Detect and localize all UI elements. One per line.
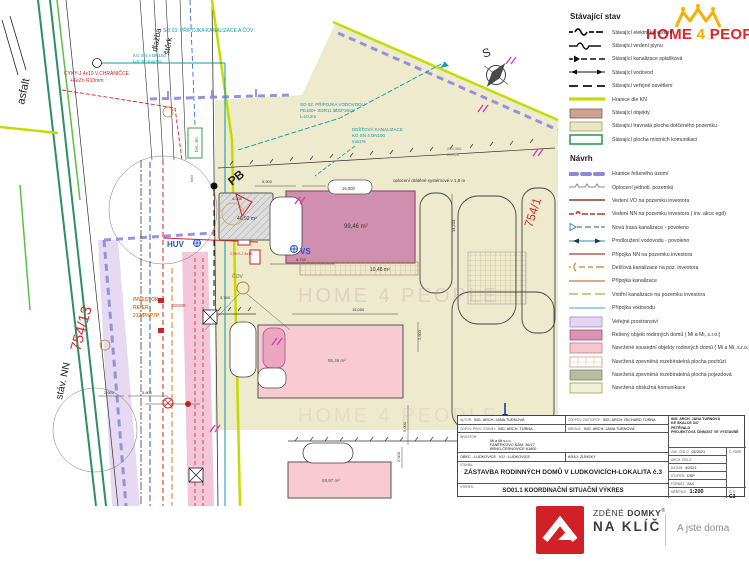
- legend-symbol-nn-line: [569, 209, 607, 220]
- vs-marker: [291, 246, 298, 253]
- dim-value: 4,200: [232, 196, 243, 201]
- legend-item-label: Stávající elektrické vedení: [612, 30, 672, 36]
- legend-item: Nová trasa kanalizace - povoleno: [563, 221, 749, 234]
- label-vs: VS: [300, 247, 311, 256]
- brand-word-zdene: ZDĚNÉ: [593, 508, 624, 518]
- brand-word-domky: DOMKY: [627, 508, 661, 518]
- legend-symbol-fencing: [569, 182, 607, 193]
- field-label: MĚŘÍTKO:: [671, 490, 686, 494]
- level-value: 269,366: [447, 146, 462, 151]
- legend-item-label: Stávající objekty: [612, 110, 650, 116]
- legend-swatch-walk-paving: [569, 356, 607, 368]
- label-investor: 212/PHP7P: [133, 313, 160, 319]
- titleblock-date-cell: DATUM:4/2021: [669, 464, 727, 472]
- legend-item: Navržené sousední objekty rodinných domů…: [563, 342, 749, 355]
- field-value: ING. ARCH. JANA TURNOVÁ: [584, 427, 635, 431]
- dim-value: 3,760: [220, 295, 231, 300]
- brand-word-naklic: NA KLÍČ: [593, 520, 666, 534]
- dim-value: 14,203: [451, 219, 456, 232]
- legend-item-label: Veřejné prostranství: [612, 319, 658, 325]
- legend-section-title: Návrh: [570, 154, 749, 163]
- legend-symbol-solved-boundary: [569, 169, 607, 180]
- legend-item-label: Stávající travnatá plocha dotčeného poze…: [612, 123, 717, 129]
- label-stav-nn: stáv. NN: [54, 362, 73, 401]
- note-cyky: +FeZn R10mm: [70, 78, 103, 84]
- label-bet-skl: bet. skl.: [194, 136, 199, 152]
- label-huv: HUV: [167, 240, 185, 249]
- legend-symbol-kn-boundary: [569, 94, 607, 105]
- legend-swatch-neighbor-houses: [569, 342, 607, 354]
- legend-item: Vedení VO na pozemku investora: [563, 194, 749, 207]
- note-cyky-small: CYKY-J 4x16: [230, 252, 252, 256]
- legend-item: Prodloužení vodovodu - povoleno: [563, 234, 749, 247]
- legend-item: Stávající vodovod: [563, 66, 749, 79]
- legend-symbol-lighting: [569, 81, 607, 92]
- note-rain-spec: min2%: [352, 139, 366, 144]
- field-value: 04/2021: [691, 450, 705, 454]
- legend-item-label: Přípojka vodovodu: [612, 305, 655, 311]
- field-label: STUPEŇ:: [671, 474, 685, 478]
- legend-section-title: Stávající stav: [570, 12, 749, 21]
- label-investor: RE-ER: [133, 305, 149, 311]
- legend-item: Stávající veřejné osvětlení: [563, 80, 749, 93]
- zdene-domky-logo-icon: [536, 506, 584, 554]
- legend-item-label: Přípojka kanalizace: [612, 278, 657, 284]
- field-label: ZAK. ČÍSLO:: [671, 450, 689, 454]
- legend-item: Navržená obslužná komunikace: [563, 382, 749, 395]
- legend-symbol-vo-line: [569, 195, 607, 206]
- compass-s: S: [480, 45, 492, 61]
- legend-item-label: Stávající vodovod: [612, 70, 653, 76]
- legend-item-label: Řešený objekt rodinných domů ( Mi a Mi, …: [612, 332, 720, 338]
- legend-item: Vedení NN na pozemku investora ( inv. ak…: [563, 208, 749, 221]
- legend-panel: Stávající stav Stávající elektrické vede…: [563, 12, 749, 395]
- title-block: AUTOR:ING. ARCH. JANA TURNOVÁ ZODPOV. ZÁ…: [457, 415, 745, 497]
- dim-value: 8,740: [296, 257, 307, 262]
- field-label: ARCH. ČÍSLO:: [671, 458, 692, 462]
- region: KRAJ: ZLÍNSKÝ: [568, 455, 596, 459]
- dim-value: 2,000: [104, 390, 115, 395]
- legend-item: Stávající objekty: [563, 106, 749, 119]
- legend-item-label: Oplocení jednotl. pozemků: [612, 185, 673, 191]
- field-label: AUTOR:: [460, 418, 472, 422]
- legend-item: Stávající elektrické vedení: [563, 26, 749, 39]
- legend-item-label: Stávající veřejné osvětlení: [612, 83, 673, 89]
- field-value: ING. ARCH. JANA TURNOVÁ: [474, 418, 525, 422]
- drawing-sheet: HOME 4 PEOPLE HOME 4 PEOPLE SO 03: PŘÍPO…: [0, 0, 749, 562]
- titleblock-investor-cell: INVESTOR: Mi a Mi s.r.o. FANĚRKOVO NÁM. …: [458, 433, 669, 453]
- legend-item-label: Dešťová kanalizace na poz. investora: [612, 265, 698, 271]
- titleblock-number-cell: Č. V. C3: [727, 488, 746, 498]
- legend-item-label: Navržená zpevněná rozebíratelná plocha p…: [612, 372, 732, 378]
- area-value: 10,48 m²: [370, 267, 390, 273]
- label-cov: ČOV: [232, 273, 244, 280]
- legend-symbol-rain-sewer: [569, 262, 607, 273]
- label-kolo: kolo: [189, 174, 194, 182]
- legend-item: Dešťová kanalizace na poz. investora: [563, 261, 749, 274]
- legend-symbol-nn-connection: [569, 249, 607, 260]
- legend-item: Stávající vedení plynu: [563, 39, 749, 52]
- titleblock-format-cell: FORMÁT:2A4: [669, 480, 727, 488]
- dim-value: 5,800: [142, 390, 153, 395]
- note-so02-spec: PE100+ SDR11 lØ32*3mm: [300, 108, 354, 113]
- titleblock-archno-cell: ARCH. ČÍSLO:: [669, 456, 727, 464]
- legend-symbol-gas: [569, 41, 607, 52]
- surface-label-sterk: štěrk: [162, 36, 174, 56]
- dim-value: 5,000: [402, 421, 407, 432]
- label-investor: INVESTOR: [133, 297, 159, 303]
- field-label: FORMÁT:: [671, 482, 685, 486]
- legend-item: Přípojka vodovodu: [563, 301, 749, 314]
- note-rain: DEŠŤOVÁ KANALIZACE: [352, 125, 403, 132]
- note-so03: SO 03: PŘÍPOJKA KANALIZACE A ČOV: [163, 26, 254, 34]
- legend-item: Řešený objekt rodinných domů ( Mi a Mi, …: [563, 328, 749, 341]
- legend-item-label: Vnitřní kanalizace na pozemku investora: [612, 292, 705, 298]
- drawing-number: C3: [729, 494, 735, 498]
- legend-item-label: Vedení VO na pozemku investora: [612, 198, 689, 204]
- dim-value: 15,050: [352, 307, 365, 312]
- note-cyky: CYKY-J 4x10 V.CHRÁNIČCE: [64, 70, 130, 77]
- legend-item: Stávající kanalizace splašková: [563, 53, 749, 66]
- titleblock-order-cell: ZAK. ČÍSLO:04/2021: [669, 448, 727, 456]
- footer-divider: [665, 514, 666, 546]
- field-value: 4/2021: [685, 466, 697, 470]
- field-label: STAVBA:: [460, 463, 473, 467]
- legend-item-label: Navržená obslužná komunikace: [612, 385, 686, 391]
- legend-symbol-new-sewer: [569, 222, 607, 233]
- legend-item-label: Přípojka NN na pozemku investora: [612, 252, 692, 258]
- titleblock-author-cell: AUTOR:ING. ARCH. JANA TURNOVÁ: [458, 416, 566, 425]
- field-label: INVESTOR:: [460, 435, 477, 439]
- legend-symbol-internal-sewer: [569, 289, 607, 300]
- note-so02-spec: l=10,2m: [300, 114, 316, 119]
- legend-symbol-water: [569, 67, 607, 78]
- legend-symbol-water-connection: [569, 303, 607, 314]
- label-ss: SS200: [172, 303, 186, 308]
- legend-item: Stávající travnatá plocha dotčeného poze…: [563, 120, 749, 133]
- legend-item-label: Stávající vedení plynu: [612, 43, 663, 49]
- legend-symbol-water-extension: [569, 236, 607, 247]
- legend-symbol-sewer-connection: [569, 276, 607, 287]
- field-value: ING. ARCH. RICHARD TURNA: [603, 418, 656, 422]
- municipality: OBEC - LUDKOVICE: [460, 455, 496, 459]
- parcel-754-13: 754/13: [67, 304, 95, 353]
- titleblock-scale-cell: MĚŘÍTKO: 1:200: [669, 488, 727, 498]
- legend-swatch-local-roads: [569, 134, 607, 145]
- legend-swatch-public-space: [569, 316, 607, 328]
- legend-item: Vnitřní kanalizace na pozemku investora: [563, 288, 749, 301]
- surface-label-asfalt: asfalt: [15, 77, 32, 105]
- dim-value: 2,000: [396, 451, 401, 462]
- note-so02: SO 02: PŘÍPOJKA VODOVODU: [300, 100, 365, 107]
- titleblock-copy-cell: Č. PARÉ: [727, 448, 746, 488]
- field-label: Č. PARÉ: [729, 450, 742, 454]
- dim-value: 2,900: [417, 329, 422, 340]
- area-value: 95,46 m²: [328, 358, 346, 363]
- scale-value: 1:200: [690, 489, 704, 495]
- field-label: VÝKRES:: [460, 485, 474, 489]
- legend-swatch-main-houses: [569, 329, 607, 341]
- legend-item: Hranice řešeného území: [563, 168, 749, 181]
- titleblock-firm-cell: ING. ARCH. JANA TURNOVÁ KE SKALCE 347 PE…: [669, 416, 746, 448]
- firm-activity: PROJEKTOVÁ ČINNOST VE VÝSTAVBĚ: [671, 430, 744, 434]
- titleblock-responsible-cell: ODPOV. PROJ. STAVBY:ING. ARCH. TURNA: [458, 425, 566, 433]
- legend-item: Hranice dle KN: [563, 93, 749, 106]
- legend-swatch-grass: [569, 121, 607, 132]
- level-value: 269,26: [447, 152, 460, 157]
- huv-marker: [194, 240, 201, 247]
- legend-item: Navržená zpevněná rozebíratelná plocha p…: [563, 355, 749, 368]
- surface-label-dlazba: dlažba: [150, 27, 163, 52]
- drawing-title: SO01.1 KOORDINAČNÍ SITUAČNÍ VÝKRES: [460, 488, 666, 494]
- watermark-text: HOME 4 PEOPLE: [298, 285, 499, 307]
- field-label: ZODPOV. ZÁSTUPCE:: [568, 418, 601, 422]
- titleblock-municipality-cell: OBEC - LUDKOVICE KÚ - LUDKOVICE: [458, 453, 566, 462]
- legend-item: Veřejné prostranství: [563, 315, 749, 328]
- titleblock-stage-cell: STUPEŇ:DSP: [669, 472, 727, 480]
- legend-item: Přípojka NN na pozemku investora: [563, 248, 749, 261]
- legend-item-label: Vedení NN na pozemku investora ( inv. ak…: [612, 211, 726, 217]
- field-value: DSP: [687, 474, 695, 478]
- legend-item-label: Navržené sousední objekty rodinných domů…: [612, 345, 749, 351]
- area-value: 99,46 m²: [344, 224, 368, 230]
- legend-item: Přípojka kanalizace: [563, 275, 749, 288]
- legend-item-label: Navržená zpevněná rozebíratelná plocha p…: [612, 359, 726, 365]
- dim-value: 15,000: [342, 186, 355, 191]
- note-so03-spec: l=5,3m min2%: [133, 59, 162, 64]
- area-value: 59,97 m²: [322, 478, 340, 483]
- legend-symbol-electric: [569, 27, 607, 38]
- legend-item: Navržená zpevněná rozebíratelná plocha p…: [563, 368, 749, 381]
- pb-point: [211, 183, 218, 190]
- note-rain-spec: KG SN 4 DN100: [352, 133, 386, 138]
- legend-item-label: Prodloužení vodovodu - povoleno: [612, 238, 689, 244]
- dim-value: 5,900: [262, 179, 273, 184]
- project-title: ZÁSTAVBA RODINNÝCH DOMŮ V LUDKOVICÍCH-LO…: [460, 469, 666, 476]
- zdene-domky-logo-text: ZDĚNÉ DOMKY® NA KLÍČ: [593, 509, 666, 533]
- legend-item-label: Stávající plocha místních komunikací: [612, 137, 697, 143]
- titleblock-drawnby-cell: KRESLIL:ING. ARCH. JANA TURNOVÁ: [566, 425, 669, 433]
- brand-tagline: A jste doma: [677, 523, 729, 534]
- note-fence: oplocení drátěné systémové v 1,8 m: [393, 178, 466, 183]
- legend-symbol-sewer: [569, 54, 607, 65]
- legend-swatch-drive-paving: [569, 369, 607, 381]
- legend-item: Oplocení jednotl. pozemků: [563, 181, 749, 194]
- cadastre: KÚ - LUDKOVICE: [499, 455, 530, 459]
- legend-swatch-existing-buildings: [569, 108, 607, 119]
- titleblock-drawing-cell: VÝKRES: SO01.1 KOORDINAČNÍ SITUAČNÍ VÝKR…: [458, 484, 669, 498]
- area-value: 46,92 m²: [237, 216, 257, 222]
- legend-item: Stávající plocha místních komunikací: [563, 133, 749, 146]
- legend-item-label: Nová trasa kanalizace - povoleno: [612, 225, 689, 231]
- field-value: ING. ARCH. TURNA: [498, 427, 533, 431]
- legend-item-label: Stávající kanalizace splašková: [612, 56, 682, 62]
- titleblock-region-cell: KRAJ: ZLÍNSKÝ: [566, 453, 669, 462]
- field-label: KRESLIL:: [568, 427, 582, 431]
- legend-item-label: Hranice řešeného území: [612, 171, 669, 177]
- titleblock-deputy-cell: ZODPOV. ZÁSTUPCE:ING. ARCH. RICHARD TURN…: [566, 416, 669, 425]
- field-label: ODPOV. PROJ. STAVBY:: [460, 427, 496, 431]
- investor-city: BRNO-ČERNOVICE 61800: [490, 447, 666, 451]
- field-label: DATUM:: [671, 466, 683, 470]
- field-value: 2A4: [687, 482, 694, 486]
- legend-swatch-service-road: [569, 382, 607, 394]
- legend-item-label: Hranice dle KN: [612, 97, 647, 103]
- titleblock-project-cell: STAVBA: ZÁSTAVBA RODINNÝCH DOMŮ V LUDKOV…: [458, 462, 669, 484]
